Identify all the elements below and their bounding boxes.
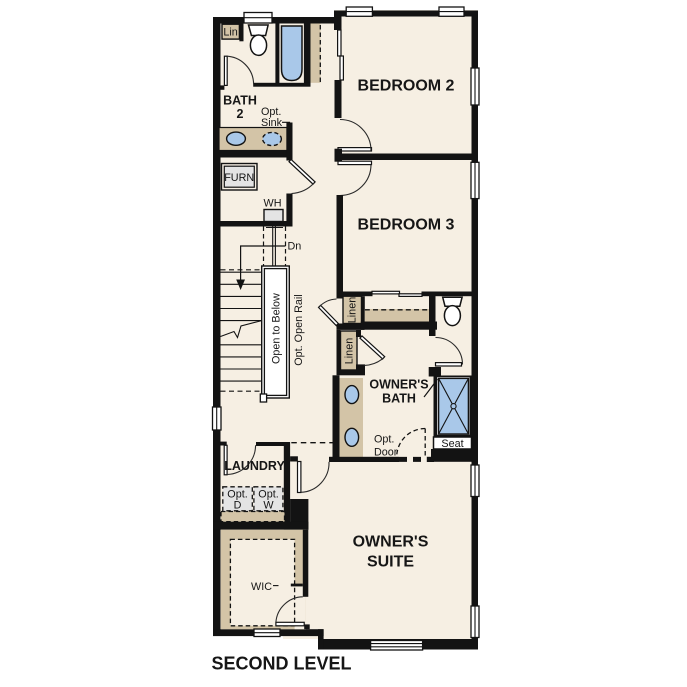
svg-text:2: 2: [237, 107, 244, 121]
svg-text:BATH: BATH: [223, 94, 257, 108]
svg-text:FURN: FURN: [224, 172, 254, 184]
svg-text:Opt. Open Rail: Opt. Open Rail: [293, 294, 305, 365]
svg-text:Open to Below: Open to Below: [271, 293, 283, 364]
svg-text:Door: Door: [374, 446, 398, 458]
svg-text:Linen: Linen: [347, 297, 359, 323]
svg-text:BATH: BATH: [382, 392, 416, 406]
svg-text:Sink: Sink: [261, 117, 283, 129]
svg-text:SUITE: SUITE: [367, 554, 414, 571]
svg-text:Opt.: Opt.: [261, 106, 281, 118]
svg-text:BEDROOM 3: BEDROOM 3: [358, 217, 455, 234]
svg-text:D: D: [234, 500, 242, 512]
svg-text:OWNER'S: OWNER'S: [353, 534, 429, 551]
svg-text:Lin: Lin: [223, 27, 237, 39]
svg-text:Opt.: Opt.: [374, 434, 394, 446]
svg-text:SECOND LEVEL: SECOND LEVEL: [212, 654, 352, 674]
svg-text:WIC: WIC: [251, 581, 272, 593]
svg-text:LAUNDRY: LAUNDRY: [224, 459, 285, 473]
svg-text:Linen: Linen: [344, 338, 356, 364]
svg-text:Dn: Dn: [288, 241, 302, 253]
svg-text:WH: WH: [264, 198, 282, 210]
svg-text:OWNER'S: OWNER'S: [369, 378, 428, 392]
svg-text:Seat: Seat: [441, 438, 463, 450]
svg-text:W: W: [263, 500, 274, 512]
svg-text:BEDROOM 2: BEDROOM 2: [358, 78, 455, 95]
